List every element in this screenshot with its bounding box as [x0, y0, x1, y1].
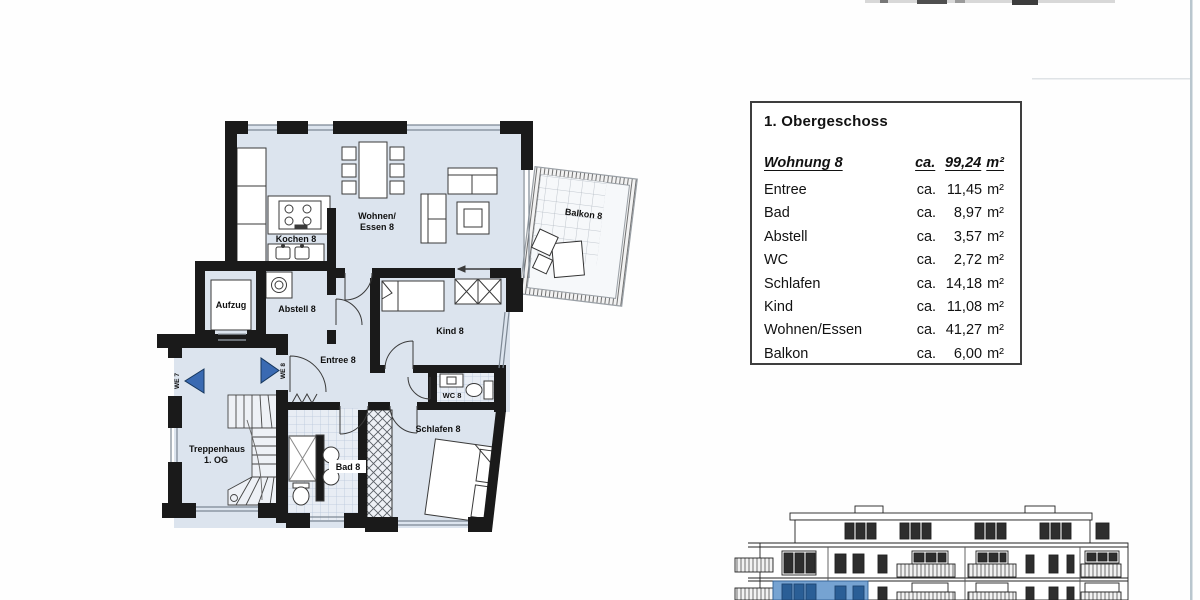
washer	[266, 272, 292, 298]
top-edge-mark	[880, 0, 888, 3]
table-row: Kind ca.11,08m²	[752, 296, 1020, 319]
room-name: Wohnen/Essen	[764, 319, 917, 342]
treppenhaus-label-1: Treppenhaus	[189, 444, 245, 454]
approx-prefix: ca.	[917, 179, 936, 202]
table-row: Bad ca.8,97m²	[752, 202, 1020, 225]
kind-label: Kind 8	[436, 326, 464, 336]
room-area-value: 6,00	[936, 343, 982, 366]
entree-label: Entree 8	[320, 355, 356, 365]
approx-prefix: ca.	[917, 249, 936, 272]
floor-title: 1. Obergeschoss	[764, 113, 1020, 130]
kitchen-sink	[268, 244, 324, 262]
table-row: Abstell ca.3,57m²	[752, 226, 1020, 249]
area-unit: m²	[987, 343, 1004, 366]
area-unit: m²	[987, 249, 1004, 272]
area-unit: m²	[987, 273, 1004, 296]
room-area-value: 2,72	[936, 249, 982, 272]
area-unit: m²	[987, 179, 1004, 202]
room-name: Entree	[764, 179, 917, 202]
room-name: Bad	[764, 202, 917, 225]
area-unit: m²	[987, 202, 1004, 225]
faint-horizontal-line	[1032, 78, 1190, 80]
dining-table	[342, 142, 404, 198]
approx-prefix: ca.	[917, 296, 936, 319]
room-area-value: 3,57	[936, 226, 982, 249]
table-row: Entree ca.11,45m²	[752, 179, 1020, 202]
room-area-value: 8,97	[936, 202, 982, 225]
room-name: Abstell	[764, 226, 917, 249]
room-area-value: 11,08	[936, 296, 982, 319]
approx-prefix: ca.	[917, 202, 936, 225]
top-edge-mark	[955, 0, 965, 3]
area-unit: m²	[987, 319, 1004, 342]
kochen-label: Kochen 8	[276, 234, 317, 244]
room-name: Kind	[764, 296, 917, 319]
room-area-value: 11,45	[936, 179, 982, 202]
bad-label: Bad 8	[336, 462, 361, 472]
wc-label: WC 8	[443, 391, 462, 400]
approx-prefix: ca.	[917, 343, 936, 366]
apartment-area-value: 99,24	[935, 152, 981, 175]
approx-prefix: ca.	[915, 152, 935, 175]
table-row: WC ca.2,72m²	[752, 249, 1020, 272]
stove	[268, 196, 330, 234]
table-row: Wohnen/Essen ca.41,27m²	[752, 319, 1020, 342]
elevation-penthouse	[790, 506, 1109, 543]
floor-plan: Balkon 8	[157, 121, 637, 532]
aufzug-label: Aufzug	[216, 300, 247, 310]
top-edge-smudge	[865, 0, 1115, 3]
abstell-label: Abstell 8	[278, 304, 316, 314]
approx-prefix: ca.	[917, 226, 936, 249]
top-edge-mark	[917, 0, 947, 4]
treppenhaus-label-2: 1. OG	[204, 455, 228, 465]
table-row: Balkon ca.6,00m²	[752, 343, 1020, 366]
we8-label: WE 8	[280, 363, 287, 379]
area-unit: m²	[987, 226, 1004, 249]
schlafen-label: Schlafen 8	[415, 424, 460, 434]
approx-prefix: ca.	[917, 319, 936, 342]
area-table-panel: 1. Obergeschoss Wohnung 8 ca. 99,24 m² E…	[750, 101, 1022, 365]
apartment-name: Wohnung 8	[764, 152, 915, 175]
area-unit: m²	[987, 296, 1004, 319]
page-edge-line	[1190, 0, 1193, 600]
area-rows: Wohnung 8 ca. 99,24 m² Entree ca.11,45m²…	[752, 152, 1020, 366]
schlafen-wardrobe	[367, 410, 392, 518]
kids-bed	[382, 281, 444, 311]
balcony: Balkon 8	[519, 167, 637, 307]
top-edge-mark	[1012, 0, 1038, 5]
room-area-value: 14,18	[936, 273, 982, 296]
approx-prefix: ca.	[917, 273, 936, 296]
room-name: Balkon	[764, 343, 917, 366]
wohnen-label-2: Essen 8	[360, 222, 394, 232]
wohnen-label-1: Wohnen/	[358, 211, 396, 221]
room-name: Schlafen	[764, 273, 917, 296]
room-area-value: 41,27	[936, 319, 982, 342]
area-unit: m²	[986, 152, 1004, 175]
kitchen-cabinets	[237, 148, 266, 262]
building-elevation	[735, 506, 1128, 600]
kind-wardrobe	[455, 279, 501, 304]
apartment-summary-row: Wohnung 8 ca. 99,24 m²	[752, 152, 1020, 177]
table-row: Schlafen ca.14,18m²	[752, 273, 1020, 296]
room-name: WC	[764, 249, 917, 272]
we7-label: WE 7	[174, 373, 181, 389]
